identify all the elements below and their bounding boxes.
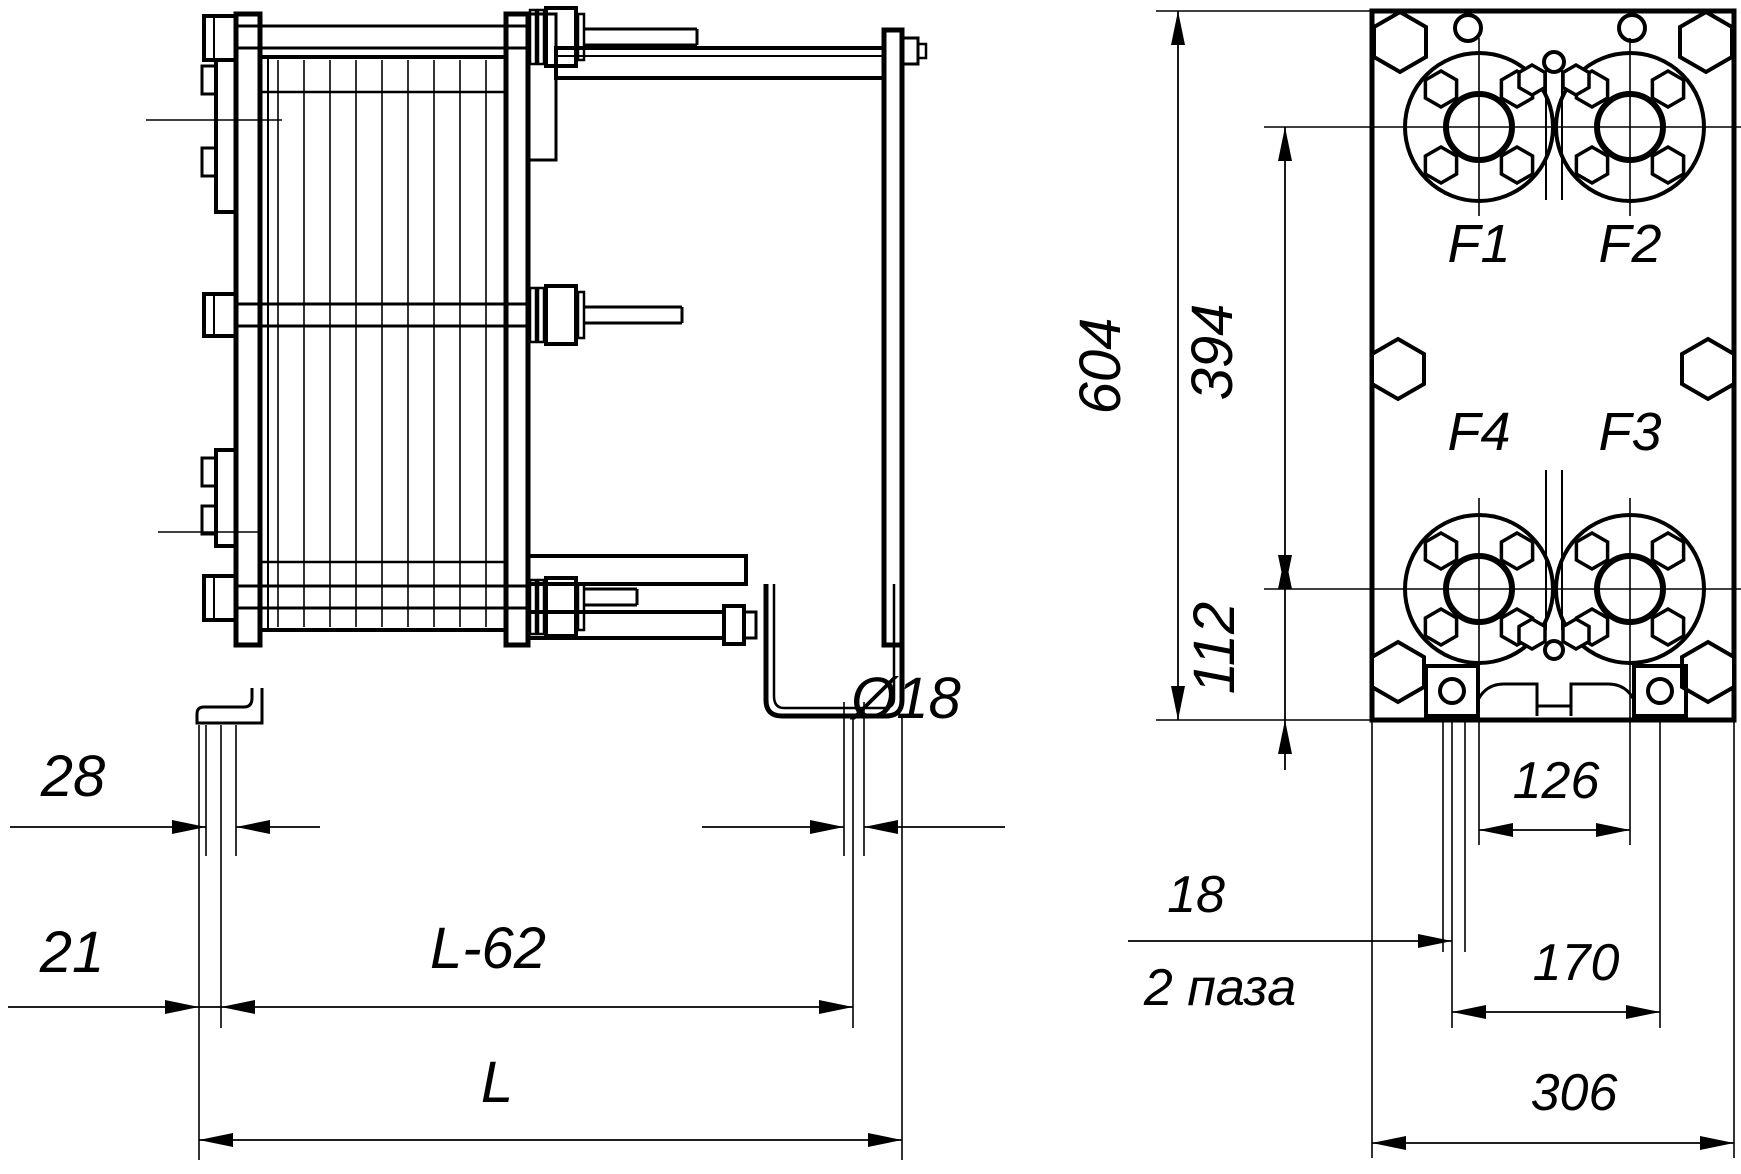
movable-frame-plate (506, 14, 528, 645)
dim-dia18-label: Ø18 (849, 666, 961, 731)
port-f2-label: F2 (1598, 214, 1661, 274)
port-f4-label: F4 (1447, 402, 1510, 462)
center-bolt-bottom (1519, 470, 1589, 659)
dim-306-label: 306 (1531, 1064, 1618, 1122)
bottom-guide-bar (528, 556, 756, 644)
front-feet (1426, 666, 1686, 716)
plate-pack (260, 57, 506, 630)
front-view: F1 F2 F4 F3 604 394 (1068, 11, 1741, 1158)
dim-28: 28 (10, 744, 320, 834)
hanger-bracket (528, 14, 556, 160)
dim-604-label: 604 (1068, 318, 1133, 415)
dim-21-l62: 21 L-62 (8, 916, 853, 1014)
dim-18-slots: 18 2 паза (1128, 866, 1452, 1017)
drawing-page: 28 Ø18 21 L-62 L (0, 0, 1741, 1174)
left-foot (197, 688, 262, 723)
dim-21-label: 21 (39, 920, 105, 985)
dim-l62-label: L-62 (430, 916, 546, 981)
support-column (884, 30, 902, 645)
port-f3-label: F3 (1598, 402, 1661, 462)
dim-126: 126 (1479, 752, 1630, 837)
dim-28-label: 28 (40, 744, 106, 809)
fixed-frame-plate (236, 14, 260, 645)
dim-112-label: 112 (1182, 602, 1247, 694)
port-f1-label: F1 (1447, 214, 1510, 274)
dim-126-label: 126 (1513, 752, 1600, 810)
dim-l: L (199, 1050, 902, 1147)
side-view-extension-lines (199, 718, 902, 1160)
dim-l-label: L (481, 1050, 513, 1115)
dim-112: 112 (1182, 555, 1292, 770)
heat-exchanger-drawing: 28 Ø18 21 L-62 L (0, 0, 1741, 1174)
side-view: 28 Ø18 21 L-62 L (8, 8, 1005, 1160)
slots-note-label: 2 паза (1143, 959, 1296, 1017)
dim-394: 394 (1180, 127, 1292, 589)
dim-394-label: 394 (1180, 304, 1245, 401)
dim-306: 306 (1372, 1064, 1734, 1150)
dim-170-label: 170 (1533, 934, 1620, 992)
dim-604: 604 (1068, 11, 1185, 720)
dim-18-label: 18 (1167, 866, 1225, 924)
tie-rod-middle (204, 286, 682, 344)
dim-170: 170 (1452, 934, 1660, 1019)
